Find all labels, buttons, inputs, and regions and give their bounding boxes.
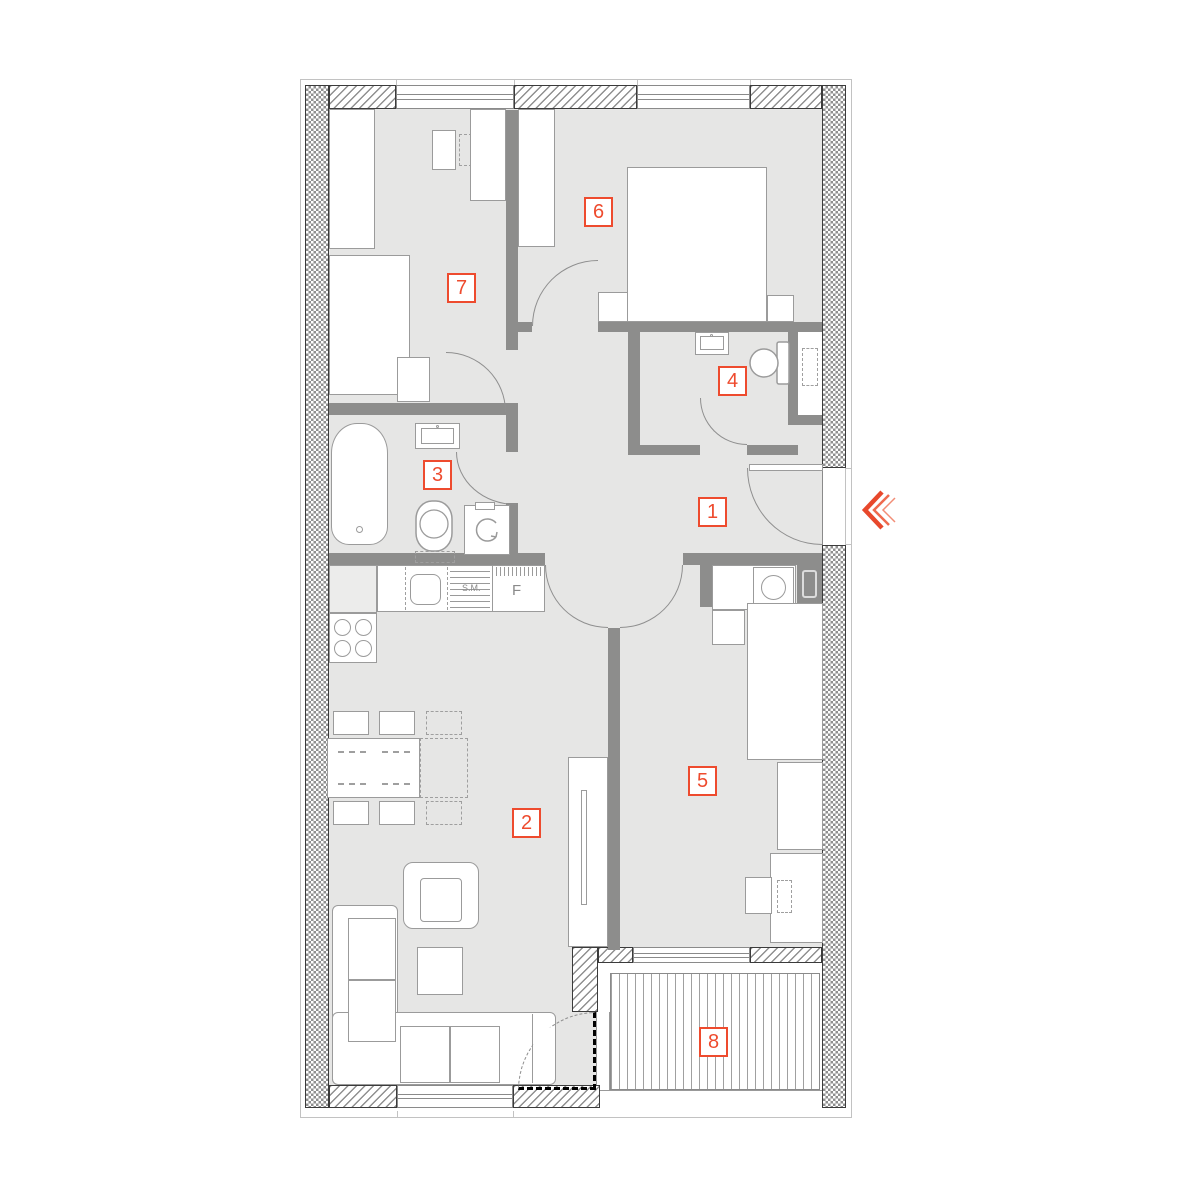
tv [581,790,587,905]
balcony-side-wall [596,1012,610,1090]
wall-room6-south [598,322,822,332]
wall-room4-south [747,445,798,455]
shaft-dashed-outline [802,348,818,386]
room-label-5: 5 [688,766,717,796]
room-label-1: 1 [698,497,727,527]
tv-unit [568,757,608,947]
wardrobe [470,109,506,201]
ventilation-shaft-inner [802,570,817,598]
room-label-4: 4 [718,366,747,396]
room-label-6: 6 [584,197,613,227]
wall-room4-stub [788,415,822,425]
reference-tick [397,1111,398,1117]
dining-table [327,738,420,798]
exterior-wall-top [750,85,822,109]
exterior-wall-right-upper [822,85,846,468]
dining-table-extension-dashed [420,738,468,798]
reference-tick [846,468,851,469]
room-label-8: 8 [699,1027,728,1057]
dining-chair [333,711,369,735]
kitchen-sink [410,574,441,605]
reference-line [851,79,852,1118]
armchair-cushion [420,878,462,922]
entrance-opening [822,468,846,545]
exterior-wall-left [305,85,329,1108]
nightstand [397,357,430,402]
side-table [417,947,463,995]
balcony-slab [598,1090,846,1116]
entrance-door-leaf [749,464,823,471]
wall-living-room5 [608,628,620,950]
reference-line [300,79,301,1118]
burner [334,640,351,657]
sofa-cushion [450,1026,500,1083]
faucet-dot [710,334,713,337]
counter-divider [405,567,406,610]
wall-hall-room5 [683,553,822,565]
wall-room4-west [628,332,640,447]
reference-line [300,79,851,80]
chair [745,877,772,914]
balcony-pillar [572,947,598,1012]
window [396,85,514,109]
wall-room7-room6 [506,110,518,350]
burner [334,619,351,636]
chair-tuck-mark [382,751,410,753]
chair-tuck-mark [338,783,366,785]
wall-niche-stub [700,565,712,607]
rotation-arrow-icon [470,513,504,547]
dining-chair [333,801,369,825]
sofa-cushion [348,918,396,980]
wall-room3-east [506,415,518,452]
bathtub-drain [356,526,363,533]
exterior-wall-top [514,85,637,109]
room-label-2: 2 [512,808,541,838]
reference-tick [846,544,851,545]
room-label-7: 7 [447,273,476,303]
balcony-wall [750,947,822,963]
window [637,85,750,109]
sofa-cushion [348,980,396,1042]
counter-divider [447,567,448,610]
wall-room6-south [506,322,532,332]
dresser [777,762,823,850]
faucet-dot [436,425,439,428]
dining-chair-dashed [426,801,462,825]
door-leaf [598,292,628,322]
room-label-3: 3 [423,460,452,490]
sink-bowl [421,428,454,444]
nightstand [767,295,794,322]
kitchen-counter-corner [329,565,377,613]
dining-chair [379,711,415,735]
reference-line [300,1117,851,1118]
wall-room4-south [628,445,700,455]
chair-dashed [777,880,792,913]
washing-machine-drum [761,575,786,600]
fridge-vent [496,567,541,576]
washing-machine-top [475,502,495,510]
floor-plan: S.M. F 1 2 3 4 5 [0,0,1200,1200]
double-bed [627,167,767,322]
dining-chair [379,801,415,825]
fridge-label: F [512,582,521,599]
wardrobe [329,109,375,249]
chair-tuck-mark [338,751,366,753]
reference-tick [513,1111,514,1117]
burner [355,640,372,657]
entrance-chevron-icon [860,488,900,532]
dishwasher-label: S.M. [462,583,481,593]
sink-bowl [700,336,724,350]
chair-tuck-mark [382,783,410,785]
window [397,1085,513,1108]
burner [355,619,372,636]
cabinet [712,610,745,645]
toilet-icon [413,498,455,556]
exterior-wall-right-lower [822,545,846,1108]
exterior-wall-top [329,85,396,109]
exterior-wall-bottom [329,1085,397,1108]
toilet-icon [748,339,792,387]
bed [747,603,823,760]
dining-chair-dashed [426,711,462,735]
balcony-door-window [633,947,750,963]
desk [432,130,456,170]
wardrobe [518,109,555,247]
drain-dashed-outline [415,551,455,563]
sofa-cushion [400,1026,450,1083]
